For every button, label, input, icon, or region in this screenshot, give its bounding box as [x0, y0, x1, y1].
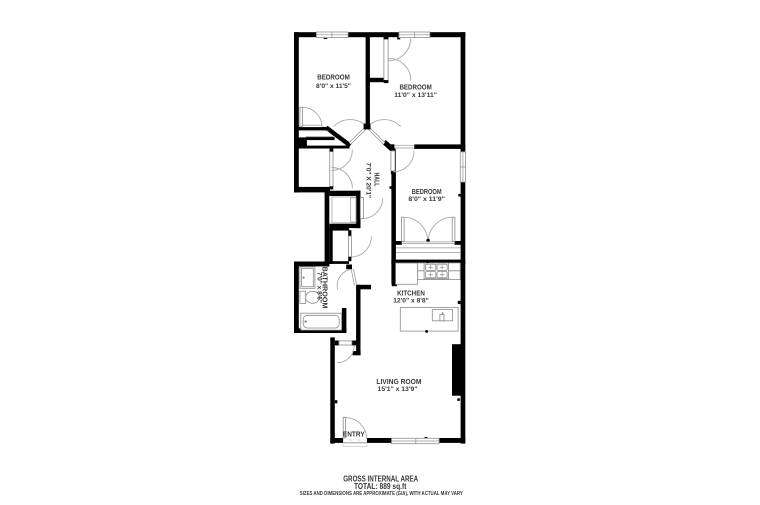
svg-text:7'0" X 20'1": 7'0" X 20'1" [365, 163, 372, 199]
svg-text:BEDROOM: BEDROOM [317, 73, 350, 82]
svg-text:7'0" x 8'6": 7'0" x 8'6" [316, 272, 323, 303]
svg-text:BEDROOM: BEDROOM [412, 187, 442, 196]
svg-text:LIVING ROOM: LIVING ROOM [376, 377, 421, 386]
svg-text:11'0" x 13'11": 11'0" x 13'11" [394, 92, 437, 99]
svg-text:SIZES AND DIMENSIONS ARE APPRO: SIZES AND DIMENSIONS ARE APPROXIMATE (GI… [300, 491, 463, 497]
svg-text:8'0" x 11'5": 8'0" x 11'5" [316, 83, 351, 90]
svg-text:HALL: HALL [373, 173, 380, 188]
svg-text:ENTRY: ENTRY [343, 431, 365, 438]
svg-text:12'0" x 8'8": 12'0" x 8'8" [393, 297, 429, 304]
svg-text:15'1" x 13'9": 15'1" x 13'9" [378, 386, 418, 393]
svg-text:TOTAL: 889 sq.ft: TOTAL: 889 sq.ft [354, 482, 407, 491]
svg-text:KITCHEN: KITCHEN [397, 288, 425, 297]
svg-text:8'0" x 11'9": 8'0" x 11'9" [408, 196, 445, 203]
svg-text:BEDROOM: BEDROOM [399, 83, 431, 92]
